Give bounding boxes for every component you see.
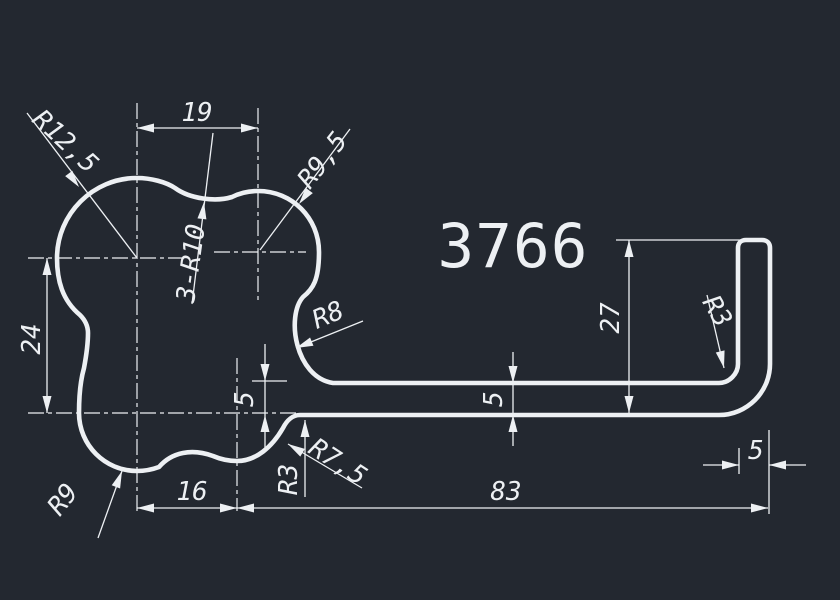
dim-19-label: 19 — [181, 98, 212, 128]
dim-83-label: 83 — [490, 477, 521, 507]
dim-5-left-label: 5 — [230, 391, 260, 407]
dim-5-hook-label: 5 — [748, 436, 764, 466]
dim-27-label: 27 — [596, 302, 626, 334]
dim-5-mid-label: 5 — [479, 391, 509, 407]
part-number-label: 3766 — [438, 211, 589, 282]
radius-r3-bottom-label: R3 — [274, 464, 304, 495]
dim-16-label: 16 — [176, 477, 207, 507]
cad-canvas[interactable]: 3766 19 24 16 83 27 5 5 5 R12,5 R9,5 3-R… — [0, 0, 840, 600]
dim-24-label: 24 — [17, 323, 47, 354]
